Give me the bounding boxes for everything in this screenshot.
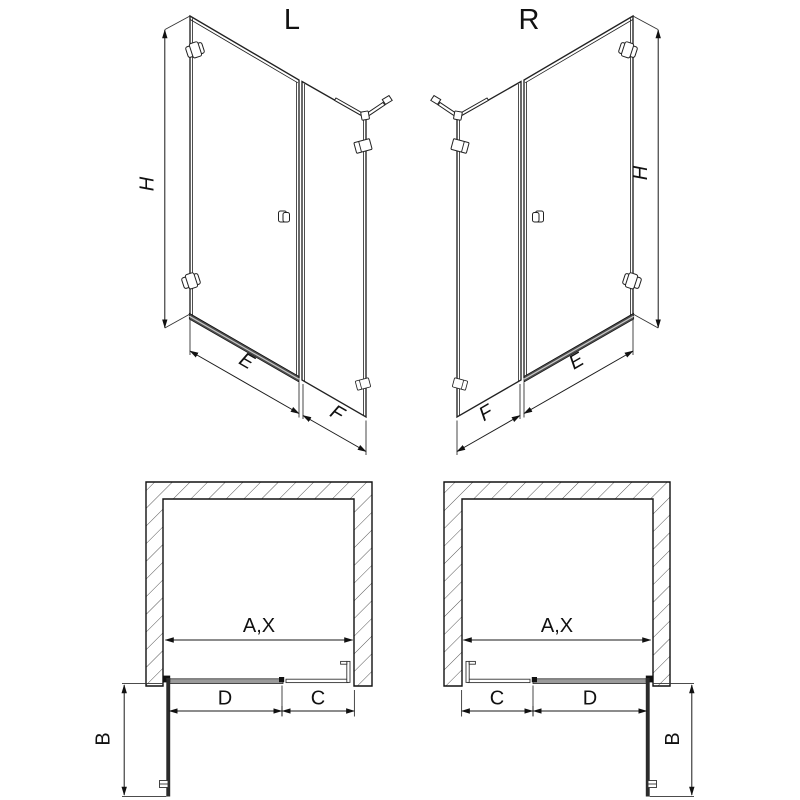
- dim-label-opening: A,X: [243, 615, 275, 637]
- plan-left-view: A,X D C B: [93, 482, 373, 797]
- hinge-top-icon: [618, 40, 639, 60]
- fixed-glass-panel: [302, 82, 366, 418]
- dim-label-panel: C: [490, 688, 504, 710]
- wall-clamp-icon: [354, 139, 372, 154]
- dimension-opening-width: A,X: [464, 615, 651, 640]
- fixed-glass-panel: [457, 82, 521, 418]
- dimension-opening-width: A,X: [166, 615, 353, 640]
- wall-profile-tick: [469, 661, 475, 664]
- support-bar-corner-fitting: [453, 111, 462, 120]
- dim-label-door-width: E: [565, 348, 588, 374]
- dim-label-swing: B: [93, 732, 115, 745]
- hinge-bottom-icon: [181, 271, 202, 291]
- door-foot-bracket-icon: [160, 781, 169, 788]
- dimension-swing-depth: B: [93, 684, 167, 797]
- dimension-swing-depth: B: [650, 684, 694, 797]
- door-panel-junction-dot: [532, 677, 537, 682]
- dimension-door-and-panel: C D: [462, 686, 647, 717]
- support-bar-corner-fitting: [361, 111, 370, 120]
- support-bar: [431, 96, 489, 121]
- shower-enclosure-diagram: L H: [0, 0, 800, 800]
- view-label-left: L: [284, 4, 300, 36]
- door-open-glass: [646, 678, 650, 797]
- door-open-glass: [166, 678, 170, 797]
- door-panel-junction-dot: [279, 677, 284, 682]
- support-bar: [335, 96, 393, 121]
- wall-clamp-icon: [451, 139, 469, 154]
- dim-label-panel-width: F: [326, 401, 349, 427]
- dim-label-door: D: [218, 688, 232, 710]
- door-foot-bracket-icon: [648, 781, 657, 788]
- door-closed-glass: [533, 679, 648, 684]
- dim-label-panel-width: F: [475, 400, 498, 426]
- hinge-bottom-icon: [622, 271, 643, 291]
- door-closed-glass: [168, 679, 283, 684]
- view-label-right: R: [519, 4, 540, 36]
- elevation-left-view: L H: [137, 4, 393, 455]
- dimension-door-and-panel: D C: [169, 686, 354, 717]
- dim-label-door: D: [583, 688, 597, 710]
- dim-label-panel: C: [311, 688, 325, 710]
- dim-label-height: H: [137, 176, 159, 191]
- fixed-panel-glass: [468, 679, 530, 682]
- dimension-panel-width: F: [303, 384, 366, 455]
- wall-profile-hook: [347, 661, 350, 682]
- wall-profile-hook: [466, 661, 469, 682]
- dim-label-swing: B: [662, 732, 684, 745]
- dim-label-opening: A,X: [541, 615, 573, 637]
- panel-bottom-clamp-icon: [355, 378, 371, 391]
- wall-profile-tick: [341, 661, 347, 664]
- dimension-panel-width: F: [457, 384, 520, 455]
- elevation-right-view: R H: [431, 4, 658, 455]
- dim-label-door-width: E: [235, 348, 258, 374]
- hinge-top-icon: [185, 40, 206, 60]
- wall-hatched: [444, 482, 670, 686]
- dim-label-height: H: [630, 165, 652, 180]
- wall-hatched: [146, 482, 372, 686]
- fixed-panel-glass: [286, 679, 348, 682]
- panel-bottom-clamp-icon: [452, 378, 468, 391]
- diagram-page: L H: [0, 0, 800, 800]
- door-handle-knob-icon: [533, 211, 544, 222]
- plan-right-view: A,X C D B: [444, 482, 694, 797]
- door-handle-knob-icon: [279, 211, 290, 222]
